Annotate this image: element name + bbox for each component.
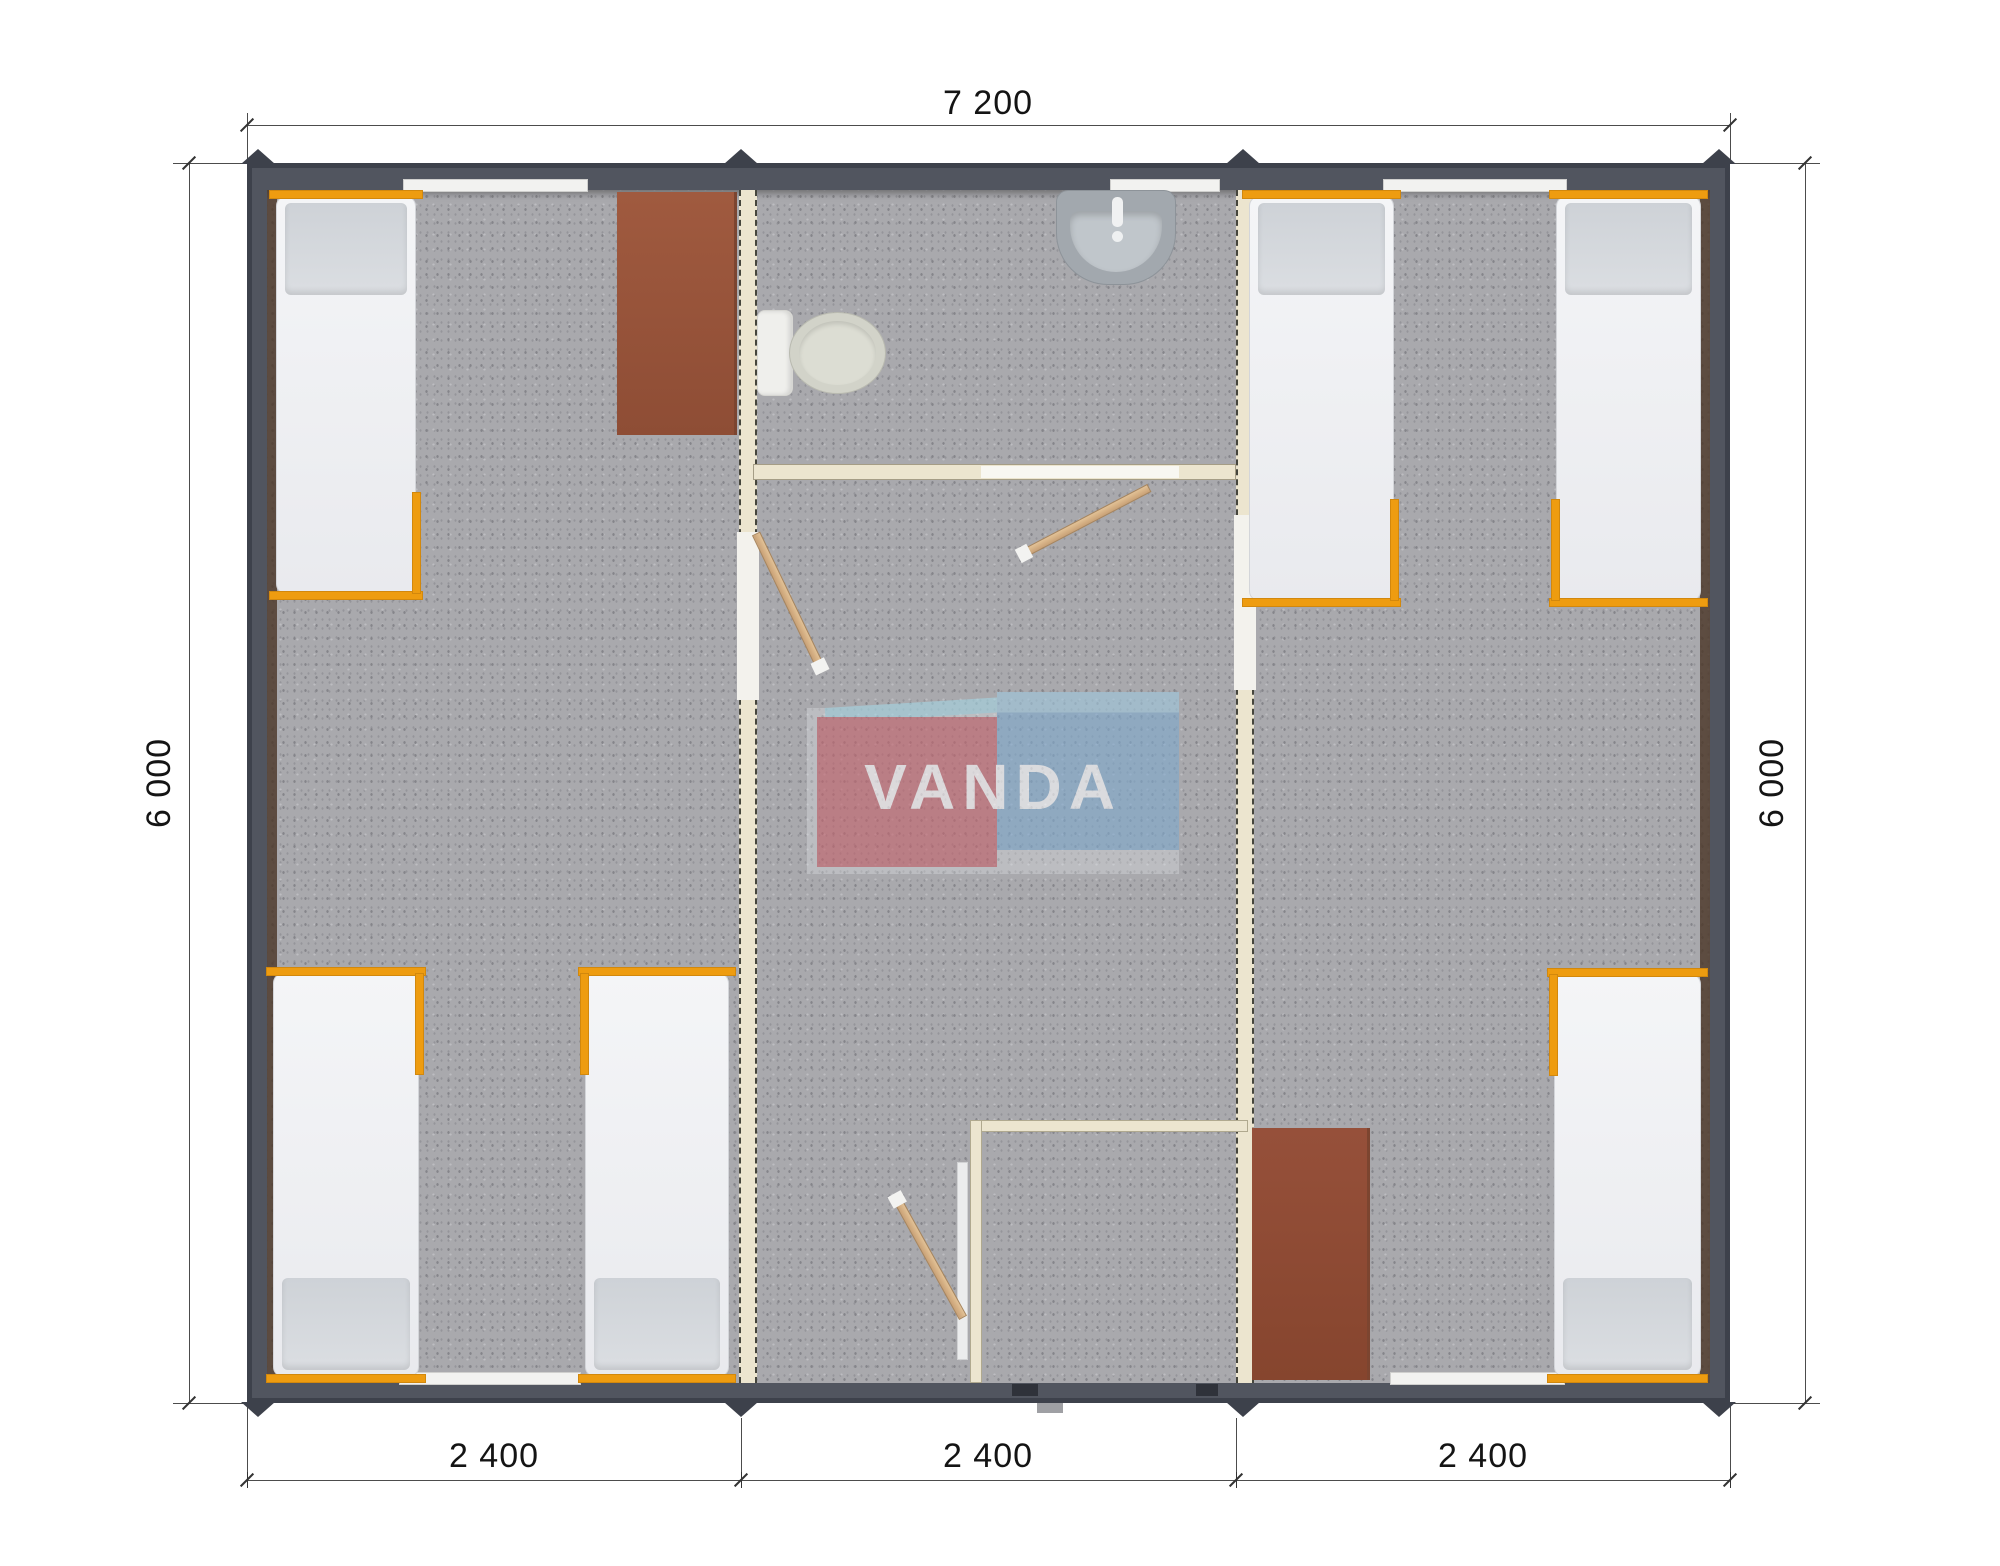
extension-line [741, 1418, 742, 1480]
dimension-line-bottom [247, 1480, 1731, 1481]
bed-frame [578, 1374, 736, 1383]
bathroom-door-threshold [981, 466, 1179, 478]
faucet-icon [1112, 197, 1123, 227]
lobby-door-panel [957, 1162, 968, 1360]
roof-joint-mark [241, 1402, 275, 1417]
extension-line [1236, 1418, 1237, 1480]
bed-frame [1551, 499, 1560, 601]
entrance-door-track [1196, 1384, 1218, 1396]
roof-joint-mark [1226, 1402, 1260, 1417]
bed-frame [1242, 190, 1401, 199]
bed-top-right-2 [1552, 190, 1705, 607]
window [399, 1372, 581, 1385]
wardrobe-table [1252, 1128, 1370, 1380]
window [1390, 1372, 1565, 1385]
dimension-label-width: 7 200 [888, 84, 1088, 123]
entrance-step [1037, 1403, 1063, 1413]
bed-frame [269, 190, 423, 199]
bed-frame [1549, 190, 1708, 199]
bed-frame [1549, 974, 1558, 1076]
window [403, 179, 588, 192]
pillow [282, 1278, 410, 1370]
extension-line [1730, 1403, 1820, 1404]
pillow [1258, 203, 1385, 295]
bed-frame [1547, 1374, 1708, 1383]
window [1383, 179, 1567, 192]
dimension-label-height-right: 6 000 [1753, 713, 1793, 853]
roof-joint-mark [1226, 149, 1260, 164]
bed-frame [1549, 598, 1708, 607]
toilet-tank [757, 310, 793, 396]
bed-frame [578, 967, 736, 976]
toilet-seat [799, 321, 876, 385]
pillow [1565, 203, 1692, 295]
bed-frame [266, 1374, 426, 1383]
pillow [594, 1278, 720, 1370]
dimension-line-top [247, 125, 1731, 126]
bed-frame [580, 973, 589, 1075]
entrance-door-track [1012, 1384, 1038, 1396]
dimension-label-module-2: 2 400 [888, 1437, 1088, 1476]
toilet [789, 312, 886, 394]
bed-bottom-left-1 [269, 967, 423, 1383]
sink [1056, 190, 1176, 285]
bed-top-right-1 [1245, 190, 1398, 607]
dimension-label-module-3: 2 400 [1383, 1437, 1583, 1476]
lobby-wall-horizontal [970, 1120, 1248, 1132]
dimension-line-right [1805, 163, 1806, 1403]
bed-frame [1547, 968, 1708, 977]
drain-icon [1112, 231, 1123, 242]
bed-bottom-left-2 [581, 967, 733, 1383]
lobby-wall-vertical [970, 1120, 982, 1383]
dimension-label-height-left: 6 000 [140, 713, 180, 853]
roof-joint-mark [1702, 149, 1736, 164]
bed-frame [269, 591, 423, 600]
pillow [285, 203, 407, 295]
wardrobe-table [617, 192, 737, 435]
dimension-label-module-1: 2 400 [394, 1437, 594, 1476]
logo-text: VANDA [807, 750, 1179, 824]
bed-frame [412, 492, 421, 594]
floor-plan-canvas: 7 200 6 000 6 000 2 400 2 400 2 400 VAND… [0, 0, 2000, 1566]
bed-bottom-right [1550, 968, 1705, 1383]
door-opening-left-room [737, 532, 759, 700]
roof-joint-mark [241, 149, 275, 164]
roof-joint-mark [1702, 1402, 1736, 1417]
bed-frame [1242, 598, 1401, 607]
partition-wall-left [739, 190, 757, 1383]
roof-joint-mark [724, 149, 758, 164]
bed-top-left [272, 190, 420, 600]
extension-line [1730, 163, 1820, 164]
bed-frame [415, 973, 424, 1075]
vanda-watermark: VANDA [807, 692, 1179, 874]
bed-frame [266, 967, 426, 976]
roof-joint-mark [724, 1402, 758, 1417]
bed-frame [1390, 499, 1399, 601]
dimension-line-left [189, 163, 190, 1403]
pillow [1563, 1278, 1692, 1370]
